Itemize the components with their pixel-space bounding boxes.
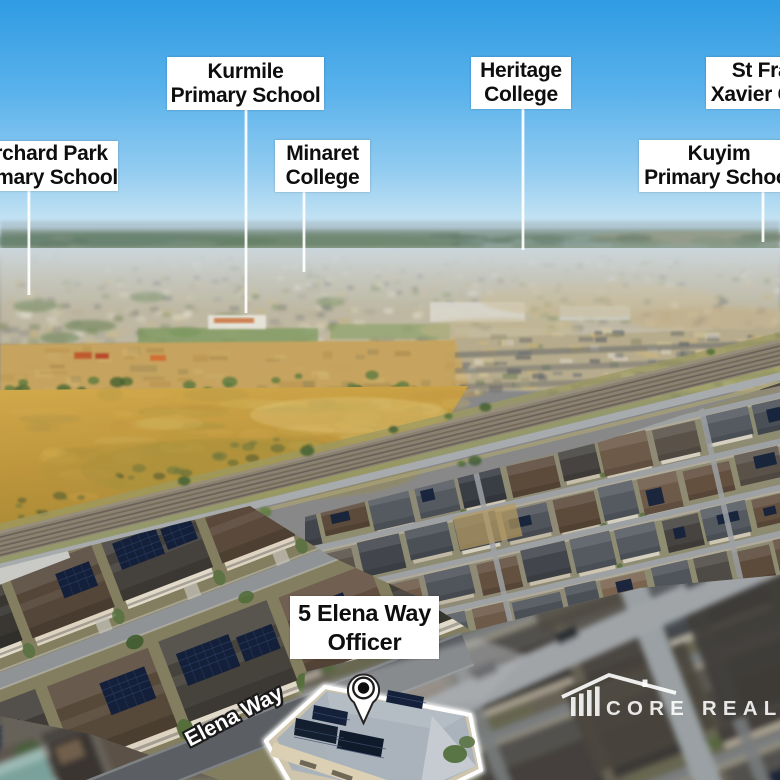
svg-text:CORE REALTY: CORE REALTY (606, 697, 780, 720)
